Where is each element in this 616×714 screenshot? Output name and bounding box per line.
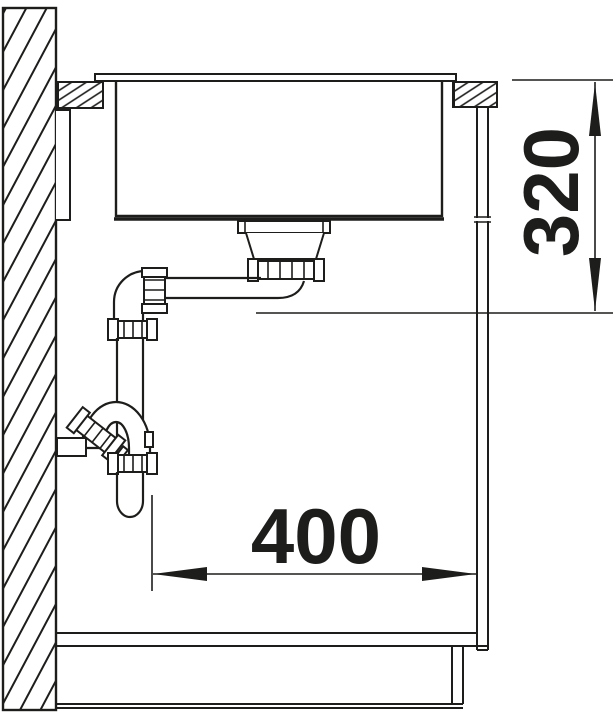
dimension-value-400: 400 [251, 492, 381, 580]
drain-strainer [238, 221, 330, 281]
technical-drawing-canvas: 320 400 [0, 0, 616, 714]
wall-outlet-stub [57, 438, 86, 456]
dimension-value-320: 320 [507, 127, 595, 257]
elbow-bend [114, 271, 145, 321]
drain-pipe-horizontal [164, 278, 304, 298]
union-nut-lower [108, 453, 157, 474]
cabinet-bottom-panel [56, 633, 488, 646]
sink-rim [95, 74, 456, 108]
sink-basin [114, 81, 444, 219]
panel-joint-gap [475, 218, 490, 221]
wall-section [3, 8, 56, 710]
union-nut-upper [108, 319, 157, 340]
pipe-clip [145, 432, 153, 447]
cabinet-plinth [56, 646, 463, 708]
arrowhead-right-icon [422, 567, 476, 581]
arrowhead-left-icon [153, 567, 207, 581]
trap-cup [117, 472, 143, 517]
cabinet-side-panel [474, 107, 491, 650]
countertop-left-block [58, 82, 103, 108]
elbow-collar-nut [142, 268, 167, 313]
arrowhead-down-icon [589, 258, 601, 311]
dimension-400: 400 [152, 492, 476, 591]
countertop-right-block [453, 82, 497, 107]
cabinet-back-batten [56, 110, 70, 220]
sink-section-diagram: 320 400 [0, 0, 616, 714]
